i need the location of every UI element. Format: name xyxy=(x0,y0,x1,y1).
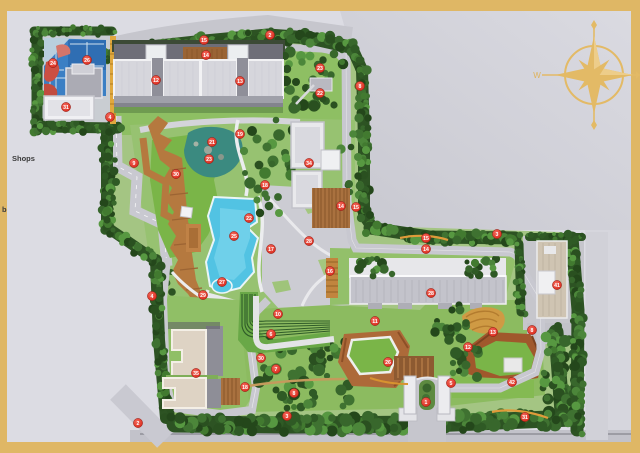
svg-text:8: 8 xyxy=(293,391,296,397)
svg-text:8: 8 xyxy=(359,84,362,90)
svg-text:30: 30 xyxy=(258,356,264,362)
svg-text:23: 23 xyxy=(206,157,212,163)
svg-text:23: 23 xyxy=(317,66,323,72)
svg-text:1: 1 xyxy=(425,400,428,406)
svg-text:35: 35 xyxy=(193,371,199,377)
svg-text:24: 24 xyxy=(50,61,56,67)
svg-text:41: 41 xyxy=(554,283,560,289)
svg-text:15: 15 xyxy=(353,205,359,211)
svg-text:22: 22 xyxy=(246,216,252,222)
svg-text:10: 10 xyxy=(275,312,281,318)
svg-text:26: 26 xyxy=(84,58,90,64)
svg-text:8: 8 xyxy=(531,328,534,334)
svg-text:22: 22 xyxy=(317,91,323,97)
svg-text:4: 4 xyxy=(109,115,112,121)
svg-text:17: 17 xyxy=(268,247,274,253)
svg-text:2: 2 xyxy=(269,33,272,39)
svg-text:6: 6 xyxy=(270,332,273,338)
svg-text:W: W xyxy=(533,71,541,80)
svg-text:34: 34 xyxy=(306,161,312,167)
svg-text:7: 7 xyxy=(275,367,278,373)
svg-text:4: 4 xyxy=(151,294,154,300)
svg-text:29: 29 xyxy=(200,293,206,299)
svg-text:28: 28 xyxy=(306,239,312,245)
svg-text:15: 15 xyxy=(201,38,207,44)
svg-text:16: 16 xyxy=(327,269,333,275)
svg-text:3: 3 xyxy=(286,414,289,420)
svg-text:Shops: Shops xyxy=(12,154,35,163)
svg-text:14: 14 xyxy=(423,247,429,253)
svg-text:b: b xyxy=(2,205,7,214)
svg-text:18: 18 xyxy=(242,385,248,391)
svg-text:13: 13 xyxy=(490,330,496,336)
svg-text:27: 27 xyxy=(219,280,225,286)
svg-text:14: 14 xyxy=(203,53,209,59)
svg-text:14: 14 xyxy=(338,204,344,210)
svg-text:13: 13 xyxy=(237,79,243,85)
svg-text:42: 42 xyxy=(509,380,515,386)
svg-text:30: 30 xyxy=(173,172,179,178)
svg-text:2: 2 xyxy=(137,421,140,427)
svg-text:28: 28 xyxy=(428,291,434,297)
svg-text:31: 31 xyxy=(522,415,528,421)
svg-text:21: 21 xyxy=(209,140,215,146)
svg-text:19: 19 xyxy=(237,132,243,138)
svg-text:11: 11 xyxy=(372,319,378,325)
svg-text:9: 9 xyxy=(133,161,136,167)
svg-text:5: 5 xyxy=(450,381,453,387)
svg-text:25: 25 xyxy=(231,234,237,240)
svg-text:3: 3 xyxy=(496,232,499,238)
svg-text:12: 12 xyxy=(465,345,471,351)
svg-text:15: 15 xyxy=(423,236,429,242)
svg-text:12: 12 xyxy=(153,78,159,84)
svg-text:26: 26 xyxy=(385,360,391,366)
svg-text:18: 18 xyxy=(262,183,268,189)
svg-text:31: 31 xyxy=(63,105,69,111)
